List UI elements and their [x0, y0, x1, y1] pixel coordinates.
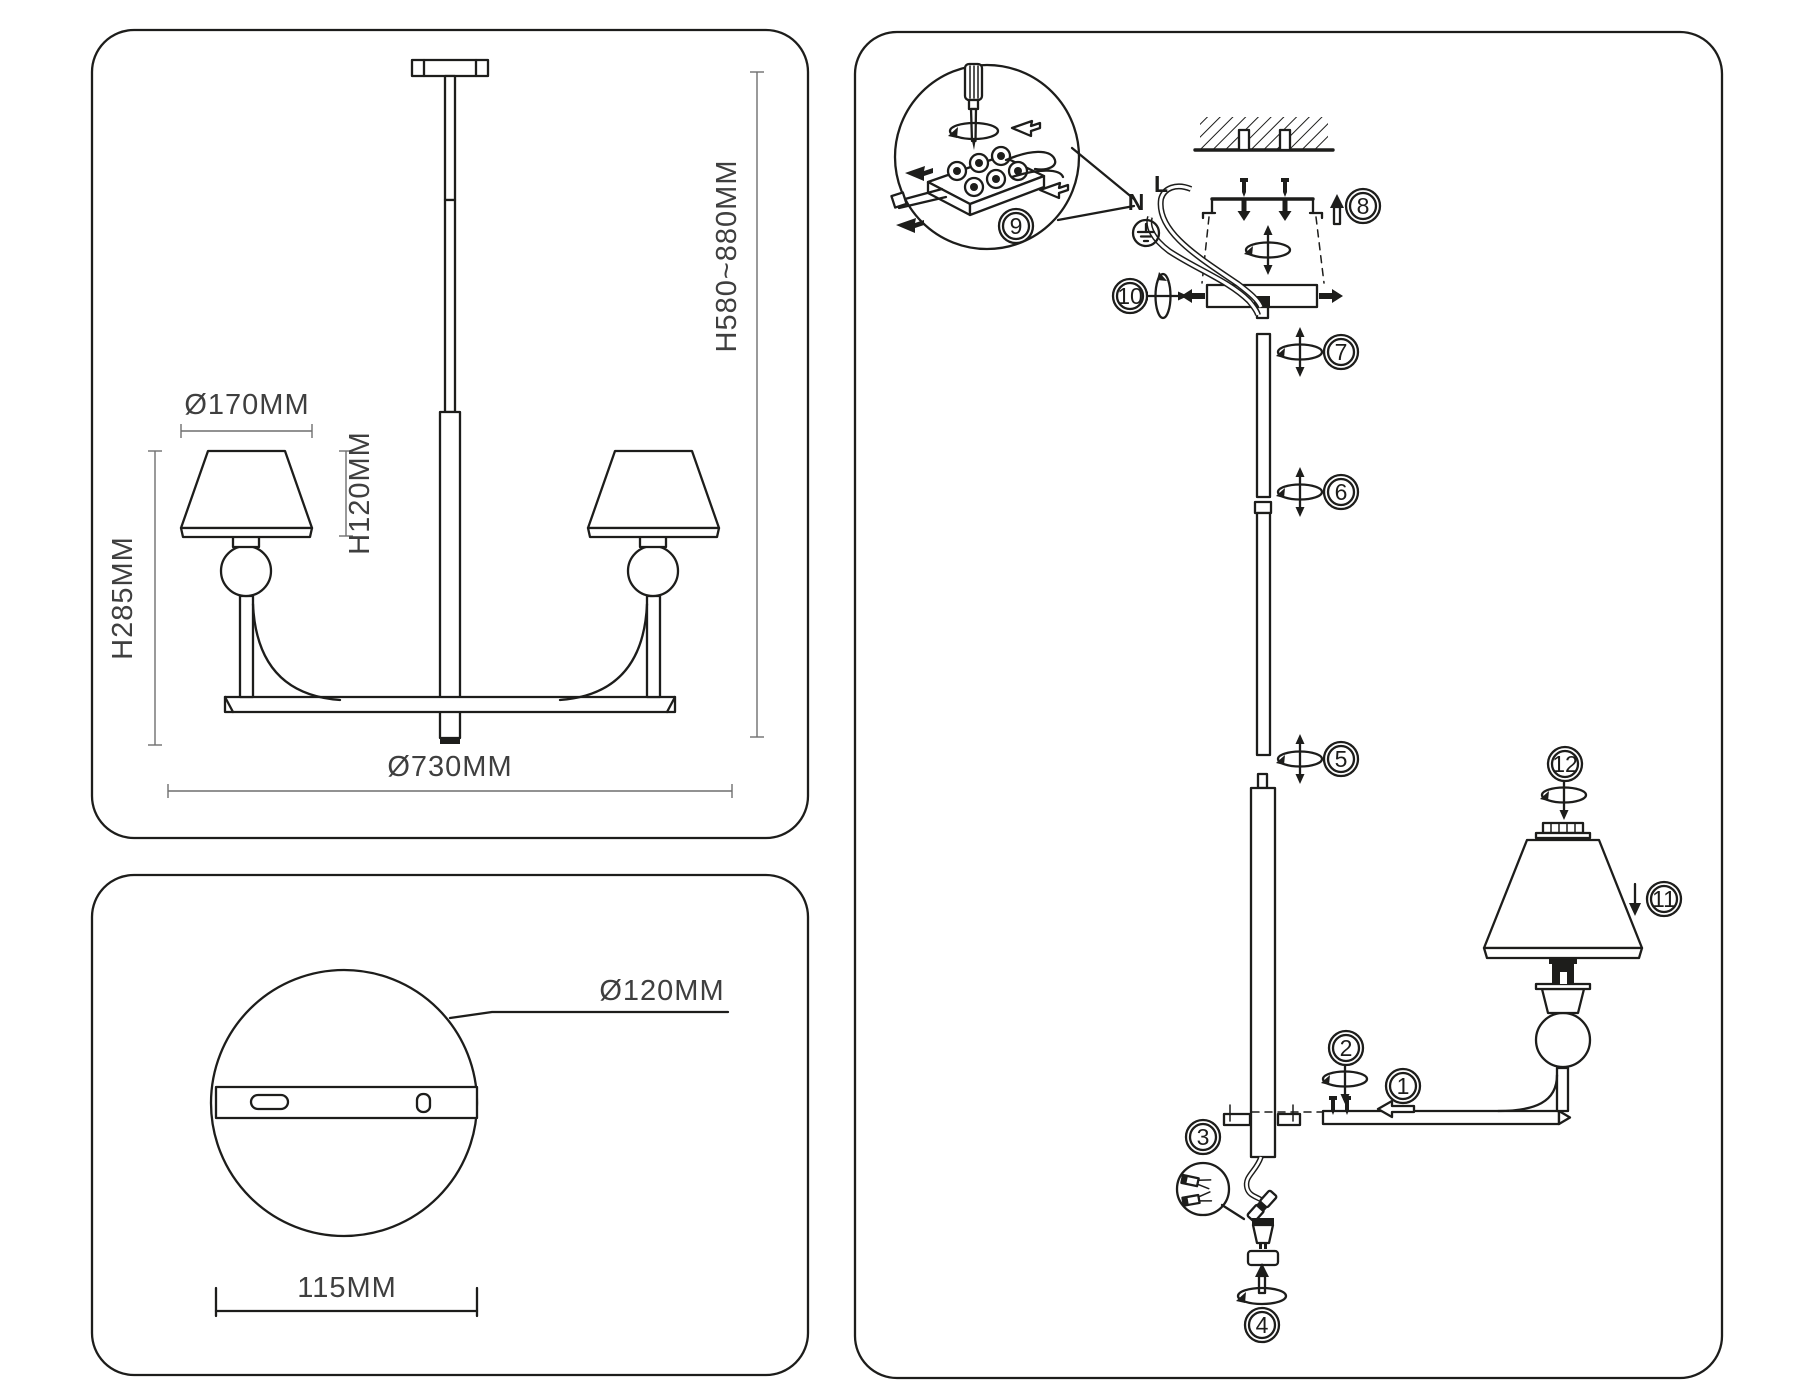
svg-text:12: 12 — [1552, 751, 1578, 777]
svg-text:1: 1 — [1397, 1073, 1410, 1099]
svg-text:5: 5 — [1335, 746, 1348, 772]
arm-stub-right — [1278, 1114, 1300, 1125]
svg-text:10: 10 — [1117, 283, 1143, 309]
tube-nipple — [1258, 774, 1267, 788]
neutral-wire-label: N — [1128, 189, 1145, 215]
step-4-badge: 4 — [1245, 1308, 1279, 1342]
shade-finial — [1536, 823, 1590, 838]
svg-text:2: 2 — [1340, 1035, 1353, 1061]
svg-text:8: 8 — [1357, 193, 1370, 219]
mounting-slot — [251, 1095, 288, 1109]
ceiling-hatch — [1195, 117, 1333, 150]
ceiling-slot-right — [1280, 130, 1290, 150]
lamp-ball — [1536, 1013, 1590, 1067]
mounting-hole — [417, 1094, 430, 1112]
plate-diameter-label: Ø120MM — [599, 975, 724, 1007]
step-3-badge: 3 — [1186, 1120, 1220, 1154]
center-column — [440, 412, 460, 738]
socket-cup — [1542, 989, 1584, 1013]
lamp-post — [1557, 1068, 1568, 1111]
step-12-badge: 12 — [1548, 747, 1582, 781]
step-1-badge: 1 — [1386, 1069, 1420, 1103]
right-ball — [628, 546, 678, 596]
svg-text:4: 4 — [1256, 1312, 1269, 1338]
svg-text:7: 7 — [1335, 339, 1348, 365]
body-height-label: H285MM — [107, 536, 139, 660]
column-foot — [440, 738, 460, 744]
lower-tube — [1251, 788, 1275, 1157]
live-wire-label: L — [1154, 171, 1168, 197]
stem-upper-rod — [445, 76, 455, 200]
shade-height-label: H120MM — [344, 431, 376, 555]
ceiling-slot-left — [1239, 130, 1249, 150]
step-11-badge: 11 — [1647, 882, 1681, 916]
step-7-badge: 7 — [1324, 335, 1358, 369]
stem-lower-rod — [445, 200, 455, 412]
left-post — [240, 596, 253, 697]
arm-stub-left — [1224, 1114, 1250, 1125]
rod-section-upper — [1257, 334, 1270, 497]
fixture-diameter-label: Ø730MM — [387, 751, 512, 783]
dim-shade-height: H120MM — [339, 431, 376, 555]
end-cap — [1248, 1251, 1278, 1265]
rod-coupler — [1255, 502, 1271, 513]
arm-bar — [1323, 1111, 1559, 1124]
shade-diameter-label: Ø170MM — [184, 389, 309, 421]
diagram-canvas: Ø170MM H120MM H285MM Ø730MM H580~880MM — [0, 0, 1800, 1400]
left-ball — [221, 546, 271, 596]
mount-spacing-label: 115MM — [297, 1272, 397, 1304]
svg-text:3: 3 — [1197, 1124, 1210, 1150]
step-6-badge: 6 — [1324, 475, 1358, 509]
svg-text:6: 6 — [1335, 479, 1348, 505]
step-9-badge: 9 — [999, 209, 1033, 243]
step-8-badge: 8 — [1346, 189, 1380, 223]
arm-bar — [225, 697, 675, 712]
step-2-badge: 2 — [1329, 1031, 1363, 1065]
svg-text:11: 11 — [1652, 886, 1676, 912]
rod-section-lower — [1257, 513, 1270, 755]
dim-shade-diameter: Ø170MM — [181, 389, 312, 438]
svg-text:9: 9 — [1010, 213, 1023, 239]
right-post — [647, 596, 660, 697]
step-10-badge: 10 — [1113, 279, 1147, 313]
step-5-badge: 5 — [1324, 742, 1358, 776]
suspension-height-label: H580~880MM — [711, 160, 743, 353]
instruction-sheet: Ø170MM H120MM H285MM Ø730MM H580~880MM — [0, 0, 1800, 1400]
